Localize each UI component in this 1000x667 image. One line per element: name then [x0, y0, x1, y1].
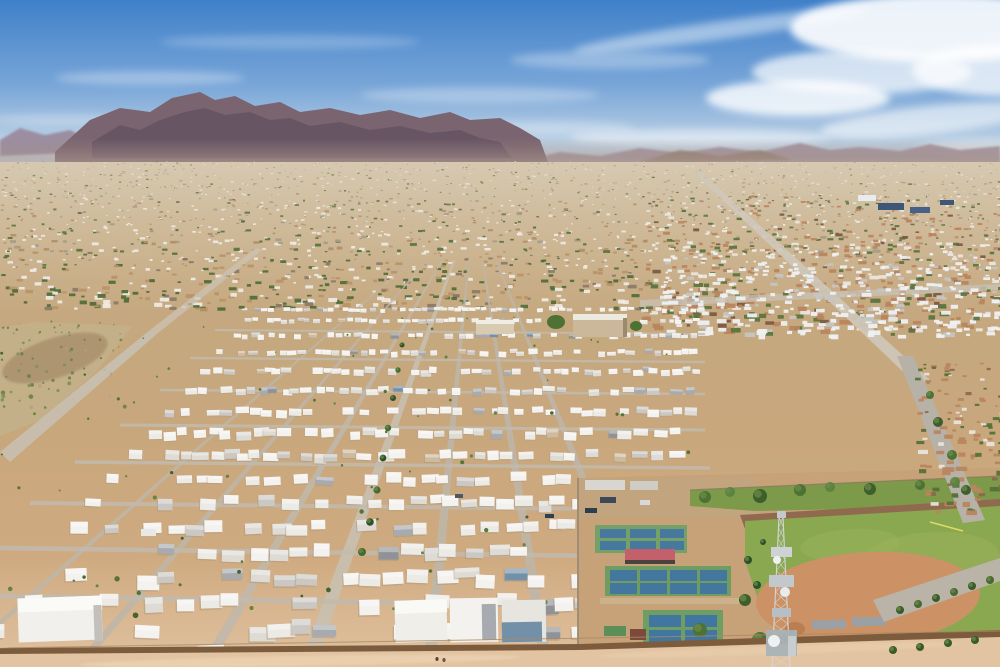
- aerial-photo-canvas: [0, 0, 1000, 667]
- aerial-photo: [0, 0, 1000, 667]
